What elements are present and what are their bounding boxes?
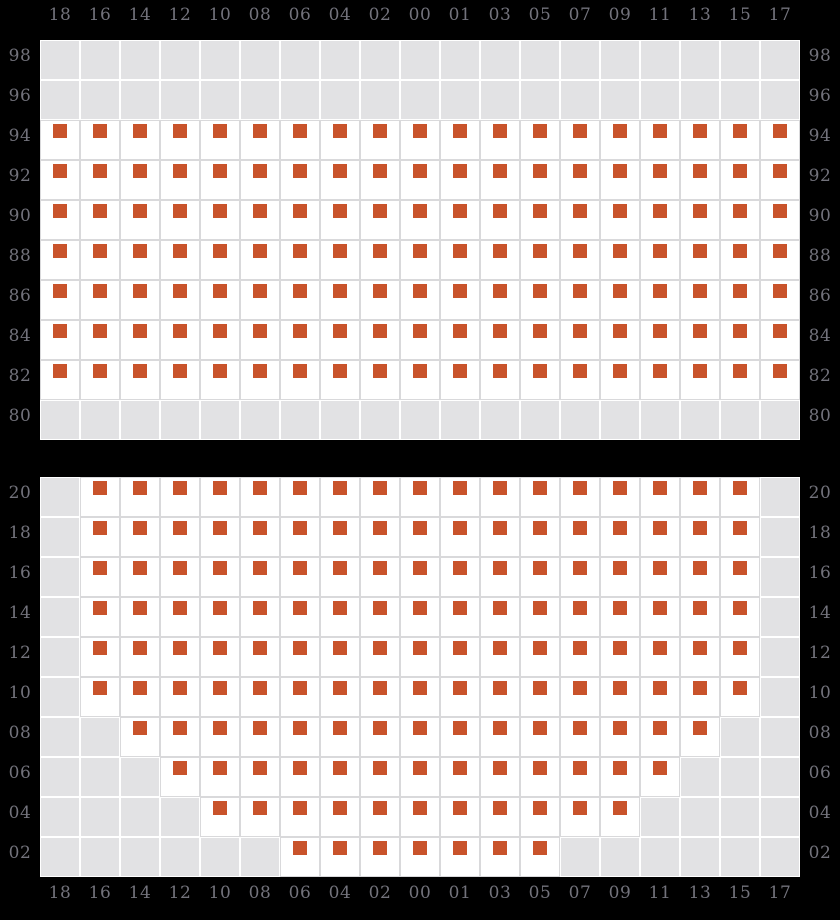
empty-cell — [200, 40, 240, 80]
marker-cell — [120, 240, 160, 280]
column-label-top-14: 14 — [120, 0, 160, 40]
square-marker — [653, 164, 667, 178]
marker-cell — [120, 120, 160, 160]
row-label-bottom-right-04: 04 — [800, 797, 840, 837]
marker-cell — [320, 717, 360, 757]
square-marker — [533, 761, 547, 775]
marker-cell — [400, 597, 440, 637]
square-marker — [133, 521, 147, 535]
square-marker — [773, 244, 787, 258]
empty-cell — [720, 837, 760, 877]
square-marker — [173, 561, 187, 575]
upper-grid-panel: 98969492908886848280 9896949290888684828… — [0, 40, 840, 440]
column-label-bottom-03: 03 — [480, 877, 520, 920]
marker-cell — [280, 757, 320, 797]
square-marker — [293, 561, 307, 575]
marker-cell — [160, 160, 200, 200]
marker-cell — [520, 240, 560, 280]
square-marker — [413, 801, 427, 815]
row-label-top-left-98: 98 — [0, 40, 40, 80]
marker-cell — [560, 120, 600, 160]
column-label-bottom-08: 08 — [240, 877, 280, 920]
marker-cell — [280, 320, 320, 360]
square-marker — [533, 364, 547, 378]
square-marker — [253, 204, 267, 218]
marker-cell — [240, 717, 280, 757]
marker-cell — [520, 557, 560, 597]
row-label-bottom-right-20: 20 — [800, 477, 840, 517]
square-marker — [133, 681, 147, 695]
marker-cell — [120, 280, 160, 320]
square-marker — [453, 721, 467, 735]
marker-cell — [360, 120, 400, 160]
square-marker — [373, 324, 387, 338]
marker-cell — [80, 557, 120, 597]
panel-divider-gap — [0, 440, 840, 477]
row-label-bottom-left-16: 16 — [0, 557, 40, 597]
empty-cell — [200, 837, 240, 877]
square-marker — [293, 124, 307, 138]
row-label-bottom-left-18: 18 — [0, 517, 40, 557]
square-marker — [173, 481, 187, 495]
square-marker — [213, 681, 227, 695]
marker-cell — [320, 597, 360, 637]
marker-cell — [240, 677, 280, 717]
column-label-bottom-17: 17 — [760, 877, 800, 920]
empty-cell — [40, 517, 80, 557]
marker-cell — [680, 477, 720, 517]
square-marker — [133, 481, 147, 495]
marker-cell — [480, 160, 520, 200]
empty-cell — [560, 400, 600, 440]
marker-cell — [400, 120, 440, 160]
square-marker — [613, 521, 627, 535]
marker-cell — [80, 280, 120, 320]
marker-cell — [320, 160, 360, 200]
column-label-top-13: 13 — [680, 0, 720, 40]
square-marker — [413, 601, 427, 615]
square-marker — [213, 721, 227, 735]
marker-cell — [600, 717, 640, 757]
square-marker — [693, 364, 707, 378]
marker-cell — [360, 597, 400, 637]
square-marker — [213, 561, 227, 575]
marker-cell — [200, 360, 240, 400]
empty-cell — [40, 400, 80, 440]
square-marker — [253, 681, 267, 695]
empty-cell — [40, 637, 80, 677]
square-marker — [53, 364, 67, 378]
marker-cell — [320, 240, 360, 280]
square-marker — [533, 521, 547, 535]
empty-cell — [80, 717, 120, 757]
marker-cell — [400, 280, 440, 320]
square-marker — [53, 204, 67, 218]
marker-cell — [600, 160, 640, 200]
marker-cell — [400, 160, 440, 200]
marker-cell — [680, 717, 720, 757]
square-marker — [173, 364, 187, 378]
square-marker — [653, 481, 667, 495]
empty-cell — [720, 797, 760, 837]
column-label-bottom-06: 06 — [280, 877, 320, 920]
marker-cell — [680, 280, 720, 320]
column-label-top-16: 16 — [80, 0, 120, 40]
square-marker — [93, 481, 107, 495]
square-marker — [373, 244, 387, 258]
square-marker — [533, 681, 547, 695]
square-marker — [373, 721, 387, 735]
marker-cell — [440, 200, 480, 240]
empty-cell — [760, 40, 800, 80]
square-marker — [453, 521, 467, 535]
row-label-bottom-left-10: 10 — [0, 677, 40, 717]
marker-cell — [200, 597, 240, 637]
marker-cell — [720, 477, 760, 517]
marker-cell — [520, 360, 560, 400]
square-marker — [253, 721, 267, 735]
square-marker — [773, 124, 787, 138]
marker-cell — [240, 637, 280, 677]
empty-cell — [40, 557, 80, 597]
marker-cell — [600, 677, 640, 717]
empty-cell — [160, 80, 200, 120]
marker-cell — [400, 797, 440, 837]
row-label-bottom-right-02: 02 — [800, 837, 840, 877]
marker-cell — [440, 837, 480, 877]
column-label-top-05: 05 — [520, 0, 560, 40]
marker-cell — [600, 200, 640, 240]
square-marker — [133, 244, 147, 258]
square-marker — [613, 681, 627, 695]
square-marker — [53, 164, 67, 178]
square-marker — [533, 204, 547, 218]
square-marker — [253, 364, 267, 378]
empty-cell — [40, 837, 80, 877]
marker-cell — [240, 360, 280, 400]
square-marker — [413, 641, 427, 655]
empty-cell — [720, 717, 760, 757]
column-label-top-18: 18 — [40, 0, 80, 40]
column-label-bottom-14: 14 — [120, 877, 160, 920]
square-marker — [93, 641, 107, 655]
square-marker — [93, 204, 107, 218]
marker-cell — [560, 320, 600, 360]
square-marker — [213, 521, 227, 535]
marker-cell — [240, 557, 280, 597]
marker-cell — [160, 557, 200, 597]
square-marker — [573, 761, 587, 775]
marker-cell — [400, 477, 440, 517]
square-marker — [573, 801, 587, 815]
lower-panel-grid — [40, 477, 800, 877]
square-marker — [173, 164, 187, 178]
marker-cell — [400, 717, 440, 757]
marker-cell — [160, 320, 200, 360]
square-marker — [693, 521, 707, 535]
square-marker — [133, 601, 147, 615]
marker-cell — [120, 597, 160, 637]
marker-cell — [160, 677, 200, 717]
square-marker — [573, 124, 587, 138]
marker-cell — [320, 360, 360, 400]
marker-cell — [520, 200, 560, 240]
marker-cell — [120, 477, 160, 517]
square-marker — [453, 284, 467, 298]
marker-cell — [760, 160, 800, 200]
marker-cell — [560, 160, 600, 200]
marker-cell — [400, 320, 440, 360]
empty-cell — [280, 80, 320, 120]
marker-cell — [360, 677, 400, 717]
marker-cell — [360, 837, 400, 877]
square-marker — [93, 244, 107, 258]
marker-cell — [120, 320, 160, 360]
square-marker — [93, 284, 107, 298]
empty-cell — [680, 757, 720, 797]
square-marker — [533, 601, 547, 615]
square-marker — [733, 164, 747, 178]
marker-cell — [240, 120, 280, 160]
row-label-top-right-80: 80 — [800, 400, 840, 440]
square-marker — [453, 481, 467, 495]
marker-cell — [280, 360, 320, 400]
marker-cell — [400, 240, 440, 280]
marker-cell — [400, 557, 440, 597]
marker-cell — [400, 637, 440, 677]
marker-cell — [80, 517, 120, 557]
marker-cell — [560, 360, 600, 400]
marker-cell — [520, 637, 560, 677]
marker-cell — [280, 200, 320, 240]
marker-cell — [760, 280, 800, 320]
row-label-top-right-82: 82 — [800, 360, 840, 400]
empty-cell — [120, 40, 160, 80]
empty-cell — [640, 837, 680, 877]
square-marker — [693, 244, 707, 258]
marker-cell — [640, 200, 680, 240]
marker-cell — [160, 517, 200, 557]
empty-cell — [280, 400, 320, 440]
marker-cell — [720, 120, 760, 160]
marker-cell — [520, 677, 560, 717]
square-marker — [373, 801, 387, 815]
square-marker — [653, 721, 667, 735]
marker-cell — [560, 597, 600, 637]
empty-cell — [760, 717, 800, 757]
marker-cell — [760, 200, 800, 240]
square-marker — [693, 284, 707, 298]
marker-cell — [280, 120, 320, 160]
row-label-top-right-86: 86 — [800, 280, 840, 320]
square-marker — [213, 284, 227, 298]
marker-cell — [360, 797, 400, 837]
marker-cell — [440, 757, 480, 797]
square-marker — [173, 324, 187, 338]
empty-cell — [440, 40, 480, 80]
square-marker — [493, 284, 507, 298]
square-marker — [453, 641, 467, 655]
marker-cell — [240, 200, 280, 240]
marker-cell — [680, 320, 720, 360]
empty-cell — [560, 80, 600, 120]
column-label-bottom-10: 10 — [200, 877, 240, 920]
marker-cell — [120, 200, 160, 240]
square-marker — [413, 561, 427, 575]
square-marker — [413, 761, 427, 775]
square-marker — [653, 364, 667, 378]
empty-cell — [760, 597, 800, 637]
empty-cell — [680, 837, 720, 877]
square-marker — [653, 601, 667, 615]
square-marker — [653, 324, 667, 338]
marker-cell — [400, 757, 440, 797]
square-marker — [93, 601, 107, 615]
column-label-bottom-07: 07 — [560, 877, 600, 920]
marker-cell — [160, 280, 200, 320]
square-marker — [413, 481, 427, 495]
marker-cell — [120, 360, 160, 400]
square-marker — [333, 244, 347, 258]
marker-cell — [320, 280, 360, 320]
marker-cell — [160, 360, 200, 400]
empty-cell — [680, 797, 720, 837]
marker-cell — [240, 280, 280, 320]
square-marker — [253, 561, 267, 575]
square-marker — [573, 284, 587, 298]
marker-cell — [640, 517, 680, 557]
column-label-top-00: 00 — [400, 0, 440, 40]
empty-cell — [40, 757, 80, 797]
marker-cell — [200, 797, 240, 837]
square-marker — [693, 561, 707, 575]
marker-cell — [480, 477, 520, 517]
square-marker — [293, 244, 307, 258]
marker-cell — [640, 637, 680, 677]
empty-cell — [280, 40, 320, 80]
marker-cell — [520, 597, 560, 637]
column-label-top-02: 02 — [360, 0, 400, 40]
row-label-top-left-86: 86 — [0, 280, 40, 320]
square-marker — [333, 681, 347, 695]
square-marker — [653, 204, 667, 218]
square-marker — [333, 364, 347, 378]
marker-cell — [480, 200, 520, 240]
marker-cell — [720, 160, 760, 200]
square-marker — [213, 801, 227, 815]
marker-cell — [120, 160, 160, 200]
square-marker — [373, 601, 387, 615]
marker-cell — [200, 240, 240, 280]
square-marker — [253, 164, 267, 178]
lower-grid-panel: 20181614121008060402 2018161412100806040… — [0, 477, 840, 877]
marker-cell — [360, 240, 400, 280]
lower-panel-right-axis: 20181614121008060402 — [800, 477, 840, 877]
square-marker — [173, 284, 187, 298]
square-marker — [573, 324, 587, 338]
row-label-bottom-right-08: 08 — [800, 717, 840, 757]
upper-panel-left-axis: 98969492908886848280 — [0, 40, 40, 440]
square-marker — [93, 521, 107, 535]
square-marker — [733, 244, 747, 258]
marker-cell — [600, 360, 640, 400]
marker-cell — [320, 517, 360, 557]
marker-cell — [280, 797, 320, 837]
square-marker — [373, 364, 387, 378]
marker-cell — [440, 240, 480, 280]
square-marker — [573, 364, 587, 378]
marker-cell — [240, 757, 280, 797]
square-marker — [93, 124, 107, 138]
square-marker — [733, 124, 747, 138]
marker-cell — [440, 280, 480, 320]
square-marker — [333, 561, 347, 575]
square-marker — [613, 284, 627, 298]
marker-cell — [240, 517, 280, 557]
row-label-bottom-right-06: 06 — [800, 757, 840, 797]
marker-cell — [560, 677, 600, 717]
square-marker — [373, 204, 387, 218]
column-label-bottom-18: 18 — [40, 877, 80, 920]
marker-cell — [240, 797, 280, 837]
square-marker — [373, 841, 387, 855]
empty-cell — [400, 40, 440, 80]
square-marker — [493, 801, 507, 815]
square-marker — [253, 641, 267, 655]
square-marker — [333, 801, 347, 815]
row-label-bottom-left-08: 08 — [0, 717, 40, 757]
marker-cell — [360, 717, 400, 757]
square-marker — [613, 601, 627, 615]
square-marker — [493, 681, 507, 695]
column-label-top-11: 11 — [640, 0, 680, 40]
square-marker — [613, 801, 627, 815]
square-marker — [693, 481, 707, 495]
marker-cell — [440, 477, 480, 517]
square-marker — [53, 284, 67, 298]
empty-cell — [680, 80, 720, 120]
empty-cell — [680, 400, 720, 440]
marker-cell — [760, 320, 800, 360]
square-marker — [493, 561, 507, 575]
marker-cell — [320, 200, 360, 240]
square-marker — [493, 164, 507, 178]
empty-cell — [40, 80, 80, 120]
square-marker — [213, 481, 227, 495]
square-marker — [493, 124, 507, 138]
square-marker — [333, 641, 347, 655]
empty-cell — [600, 80, 640, 120]
square-marker — [413, 364, 427, 378]
marker-cell — [80, 320, 120, 360]
column-label-top-10: 10 — [200, 0, 240, 40]
marker-cell — [360, 477, 400, 517]
marker-cell — [280, 597, 320, 637]
square-marker — [533, 561, 547, 575]
square-marker — [173, 601, 187, 615]
marker-cell — [40, 120, 80, 160]
marker-cell — [480, 637, 520, 677]
marker-cell — [400, 200, 440, 240]
square-marker — [613, 561, 627, 575]
top-column-axis: 18161412100806040200010305070911131517 — [40, 0, 800, 40]
square-marker — [133, 124, 147, 138]
marker-cell — [320, 637, 360, 677]
marker-cell — [720, 280, 760, 320]
marker-cell — [720, 517, 760, 557]
empty-cell — [240, 837, 280, 877]
column-label-bottom-09: 09 — [600, 877, 640, 920]
